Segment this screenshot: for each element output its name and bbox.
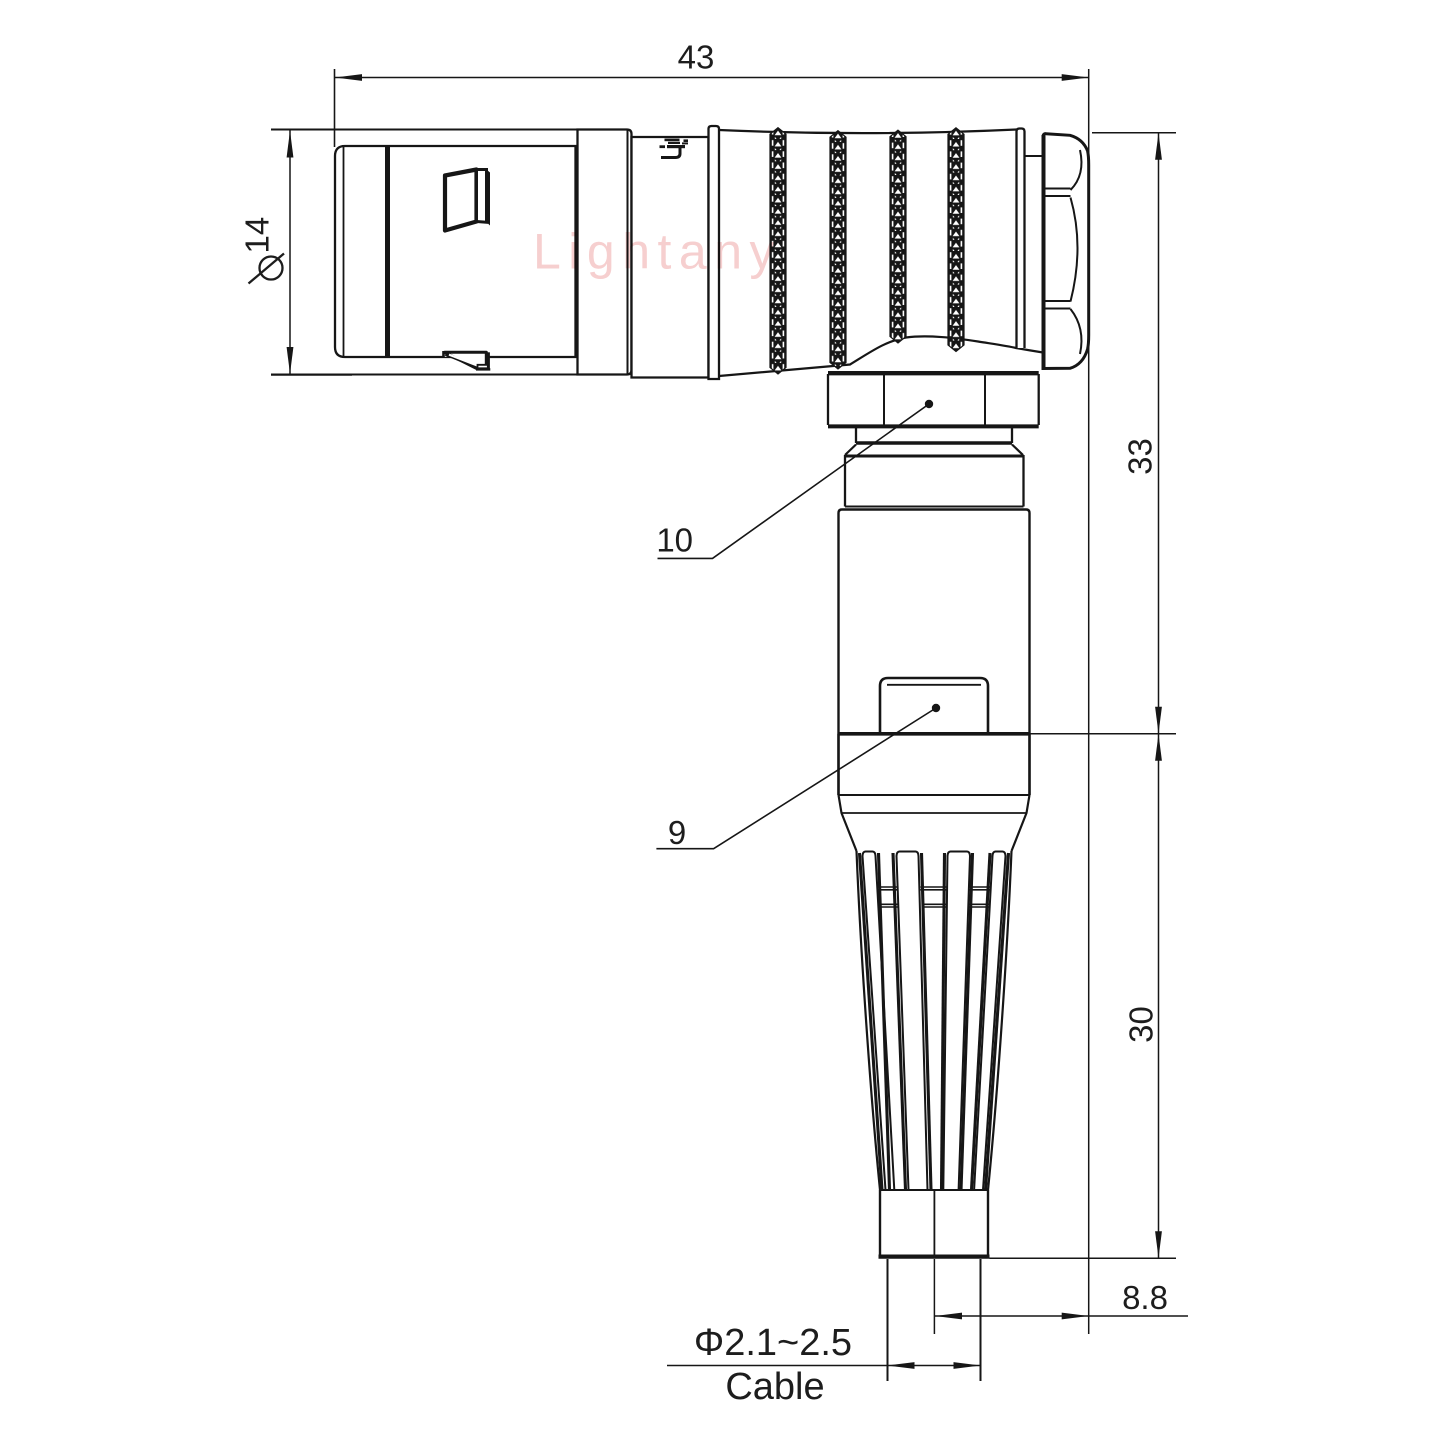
svg-text:33: 33 [1122,438,1159,475]
svg-text:43: 43 [678,39,715,76]
svg-text:Cable: Cable [725,1366,824,1408]
svg-text:8.8: 8.8 [1122,1279,1168,1316]
svg-text:10: 10 [656,522,693,559]
svg-text:9: 9 [668,814,686,851]
svg-text:30: 30 [1123,1006,1160,1043]
svg-text:14: 14 [239,217,276,254]
svg-text:Φ2.1~2.5: Φ2.1~2.5 [694,1322,852,1364]
svg-text:Lightany: Lightany [533,224,782,280]
